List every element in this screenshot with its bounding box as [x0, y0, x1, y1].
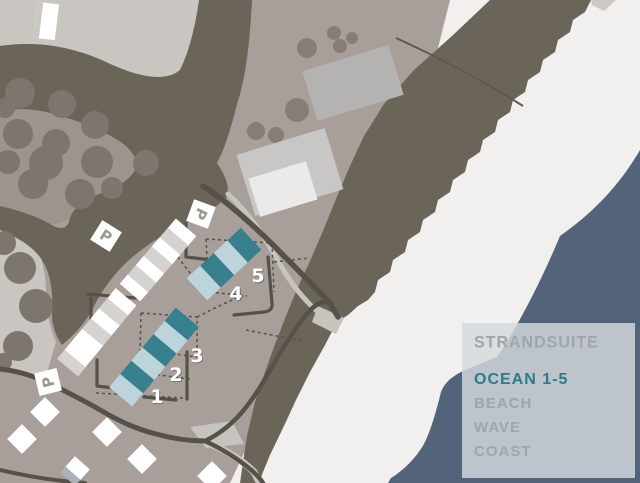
unit-number-5[interactable]: 5	[251, 265, 264, 287]
tree	[327, 26, 341, 40]
tree	[133, 150, 159, 176]
tree	[247, 122, 265, 140]
unit-number-4[interactable]: 4	[229, 283, 242, 305]
tree	[285, 98, 309, 122]
tree	[3, 119, 33, 149]
unit-number-2[interactable]: 2	[169, 364, 182, 386]
unit-number-3[interactable]: 3	[190, 345, 203, 367]
tree	[19, 289, 53, 323]
legend-item-ocean[interactable]: OCEAN 1-5	[474, 372, 635, 388]
site-map: 1 2 3 4 5 P P P STRANDSUITE OCEAN 1-5 BE…	[0, 0, 640, 483]
tree	[346, 32, 358, 44]
tree	[297, 38, 317, 58]
tree	[101, 177, 123, 199]
tree	[48, 90, 76, 118]
legend-item-wave[interactable]: WAVE	[474, 420, 635, 436]
tree	[4, 252, 36, 284]
tree	[65, 179, 95, 209]
tree	[18, 169, 48, 199]
tree	[333, 39, 347, 53]
legend-panel: STRANDSUITE OCEAN 1-5 BEACH WAVE COAST	[462, 323, 635, 478]
tree	[81, 111, 109, 139]
unit-number-1[interactable]: 1	[150, 386, 163, 408]
tree	[268, 127, 284, 143]
tree	[81, 146, 113, 178]
legend-item-coast[interactable]: COAST	[474, 444, 635, 460]
legend-title: STRANDSUITE	[474, 334, 635, 353]
legend-item-beach[interactable]: BEACH	[474, 396, 635, 412]
building-small-topleft	[33, 2, 59, 40]
